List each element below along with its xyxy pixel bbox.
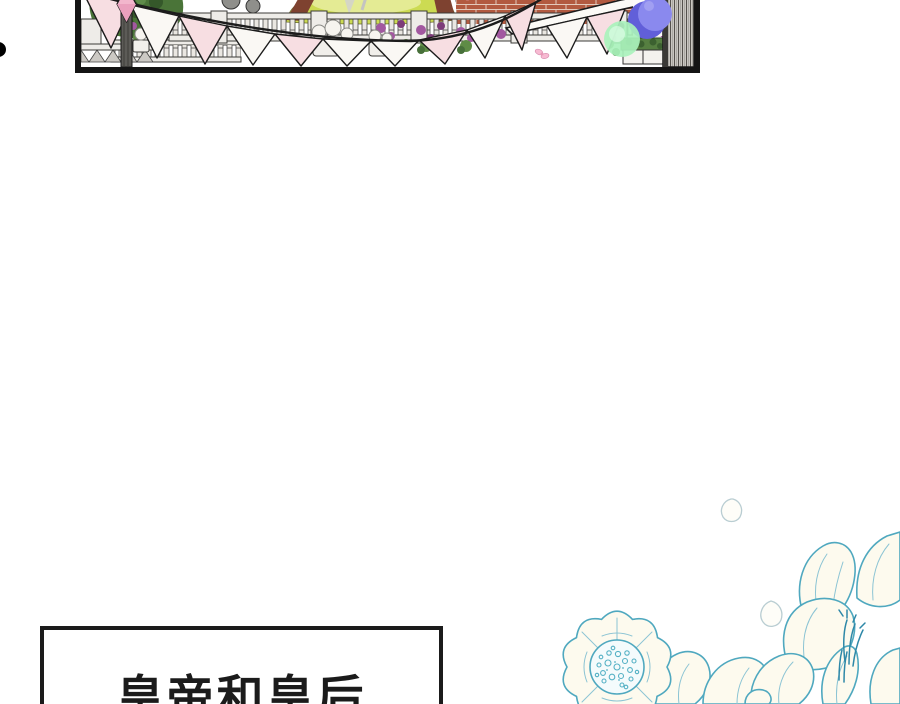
caption-text: 皇帝和皇后: [44, 672, 439, 704]
garden-scene: [81, 0, 694, 67]
floating-petal: [721, 499, 781, 626]
ink-dot: [0, 42, 6, 57]
flower-line-art: [555, 492, 900, 704]
scabiosa-flower: [563, 611, 671, 704]
caption-box: 皇帝和皇后: [40, 626, 443, 704]
balloon-green: [604, 21, 640, 57]
comic-page: 皇帝和皇后: [0, 0, 900, 704]
comic-panel: [75, 0, 700, 73]
